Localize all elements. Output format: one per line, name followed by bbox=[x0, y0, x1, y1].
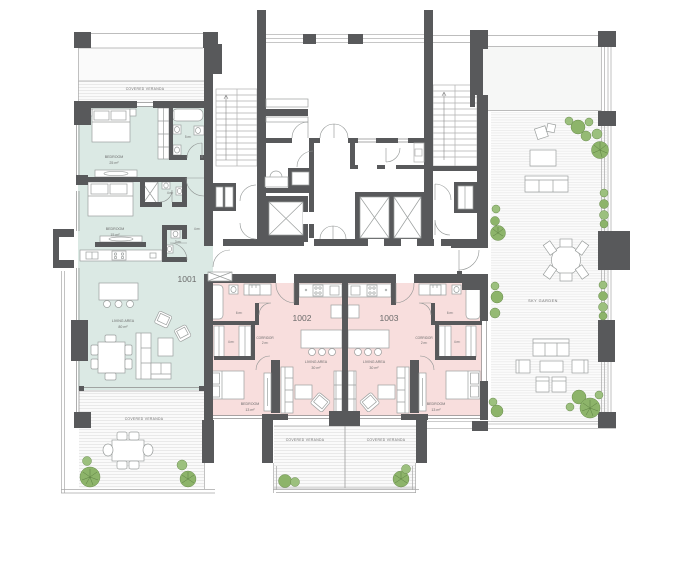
svg-text:80 m²: 80 m² bbox=[118, 325, 128, 329]
svg-text:4 m²: 4 m² bbox=[454, 340, 460, 344]
svg-text:15 m²: 15 m² bbox=[110, 233, 120, 237]
svg-text:BEDROOM: BEDROOM bbox=[427, 402, 446, 406]
svg-text:1003: 1003 bbox=[380, 313, 399, 323]
svg-text:6 m²: 6 m² bbox=[236, 311, 242, 315]
svg-text:30 m²: 30 m² bbox=[311, 366, 321, 370]
svg-text:LIVING AREA: LIVING AREA bbox=[112, 319, 135, 323]
svg-text:LIVING AREA: LIVING AREA bbox=[363, 360, 386, 364]
svg-text:BEDROOM: BEDROOM bbox=[105, 155, 124, 159]
svg-text:1002: 1002 bbox=[293, 313, 312, 323]
svg-text:13 m²: 13 m² bbox=[245, 408, 255, 412]
svg-text:6 m²: 6 m² bbox=[447, 311, 453, 315]
svg-text:1001: 1001 bbox=[178, 274, 197, 284]
svg-text:25 m²: 25 m² bbox=[109, 161, 119, 165]
svg-text:4 m²: 4 m² bbox=[194, 227, 200, 231]
svg-text:CORRIDOR: CORRIDOR bbox=[415, 336, 433, 340]
svg-text:SKY GARDEN: SKY GARDEN bbox=[528, 299, 558, 303]
svg-text:COVERED VERANDA: COVERED VERANDA bbox=[367, 438, 406, 442]
svg-text:5 m²: 5 m² bbox=[185, 135, 191, 139]
svg-text:COVERED VERANDA: COVERED VERANDA bbox=[126, 87, 165, 91]
svg-text:CORRIDOR: CORRIDOR bbox=[256, 336, 274, 340]
svg-text:2 m²: 2 m² bbox=[421, 341, 427, 345]
svg-text:BEDROOM: BEDROOM bbox=[241, 402, 260, 406]
svg-text:COVERED VERANDA: COVERED VERANDA bbox=[286, 438, 325, 442]
svg-text:13 m²: 13 m² bbox=[431, 408, 441, 412]
svg-text:4 m²: 4 m² bbox=[167, 191, 173, 195]
svg-text:2 m²: 2 m² bbox=[262, 341, 268, 345]
svg-text:3 m²: 3 m² bbox=[175, 240, 181, 244]
svg-text:BEDROOM: BEDROOM bbox=[106, 227, 125, 231]
svg-text:LIVING AREA: LIVING AREA bbox=[305, 360, 328, 364]
svg-text:4 m²: 4 m² bbox=[228, 340, 234, 344]
svg-text:COVERED VERANDA: COVERED VERANDA bbox=[125, 417, 164, 421]
svg-text:30 m²: 30 m² bbox=[369, 366, 379, 370]
